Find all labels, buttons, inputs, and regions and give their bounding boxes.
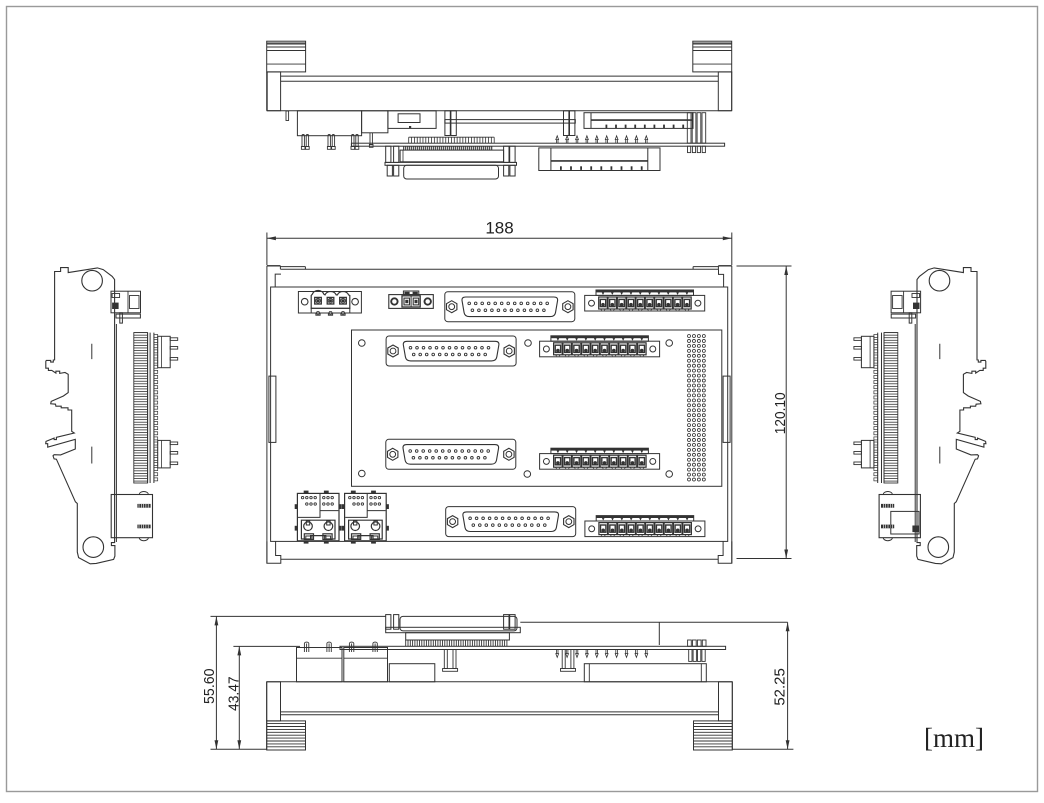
svg-text:55.60: 55.60 (201, 668, 218, 704)
svg-text:120.10: 120.10 (772, 392, 789, 434)
svg-text:[mm]: [mm] (924, 723, 984, 753)
svg-text:52.25: 52.25 (772, 668, 789, 706)
svg-text:188: 188 (485, 219, 513, 238)
svg-text:43.47: 43.47 (226, 676, 243, 711)
